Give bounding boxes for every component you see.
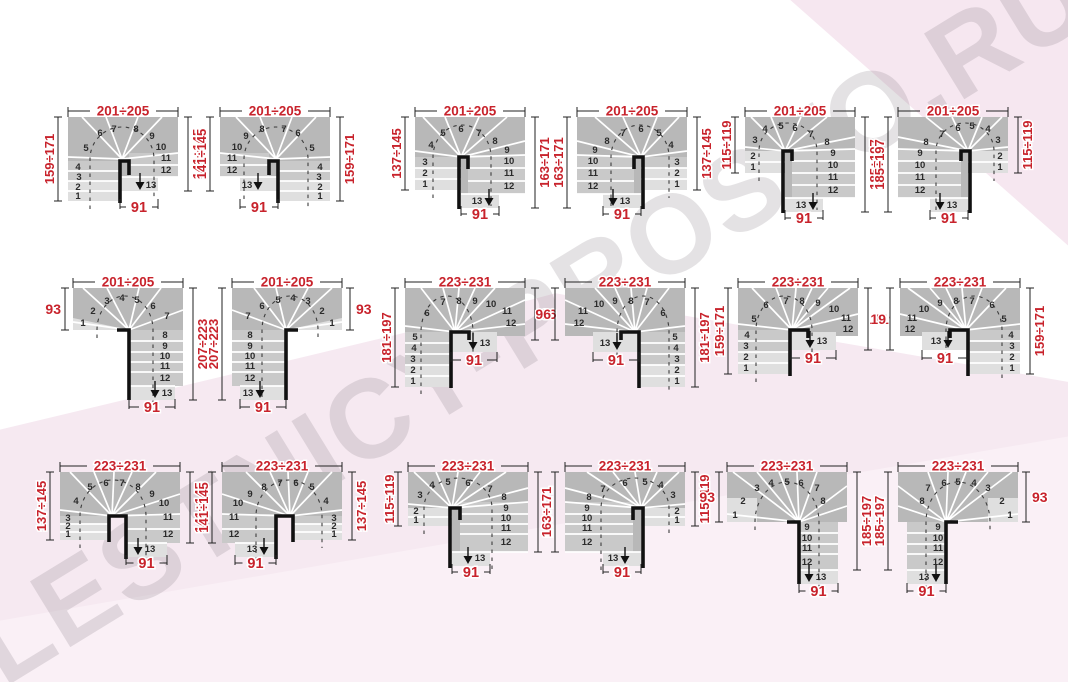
stair-plan-svg: 12345678910111213201÷205141÷145159÷17191	[180, 103, 362, 261]
stair-wall-bar	[117, 330, 129, 400]
dim-label: 201÷205	[444, 104, 497, 119]
dim-label: 159÷171	[1032, 306, 1047, 357]
dim-label: 115÷119	[382, 474, 397, 523]
step-number: 6	[798, 478, 803, 489]
step-number: 7	[644, 297, 649, 308]
step-number: 1	[743, 363, 749, 374]
stair-catalog-canvas: LESTNICY-PROSTO.RU 12345678910111213201÷…	[0, 0, 1068, 682]
step-number: 11	[907, 313, 918, 324]
dim-label: 223÷231	[256, 459, 309, 474]
step-number: 13	[817, 336, 828, 347]
step-number: 12	[915, 185, 926, 196]
step-number: 1	[674, 376, 680, 387]
step-number: 3	[410, 354, 415, 365]
stair-diagram-r3-6: 12345678910111213223÷231185÷1979391	[868, 458, 1050, 616]
stair-plan-svg: 12345678910111213223÷231137÷145141÷14591	[30, 458, 212, 616]
step-number: 5	[778, 121, 784, 132]
step-number: 3	[1009, 341, 1014, 352]
dim-label: 91	[144, 400, 160, 416]
dim-label: 91	[251, 200, 267, 216]
step-number: 13	[247, 544, 258, 555]
step-number: 13	[796, 200, 807, 211]
step-number: 6	[638, 124, 643, 135]
step-number: 4	[985, 124, 991, 135]
step-number: 12	[163, 529, 174, 540]
step-number: 13	[480, 338, 491, 349]
step-number: 3	[754, 483, 759, 494]
step-number: 11	[160, 361, 171, 372]
step-number: 6	[150, 301, 155, 312]
dim-label: 207÷223	[206, 319, 221, 370]
step-number: 11	[828, 172, 839, 183]
dim-label: 223÷231	[761, 459, 814, 474]
step-number: 9	[592, 145, 597, 156]
step-number: 12	[933, 557, 944, 568]
step-number: 6	[763, 300, 768, 311]
step-number: 9	[815, 298, 820, 309]
step-number: 2	[317, 182, 322, 193]
step-number: 12	[582, 537, 593, 548]
dim-label: 91	[918, 584, 934, 600]
step-number: 3	[417, 490, 422, 501]
step-number: 1	[997, 162, 1003, 173]
step-number: 4	[744, 330, 750, 341]
step-number: 10	[232, 142, 243, 153]
step-number: 7	[245, 311, 250, 322]
step-number: 2	[75, 182, 80, 193]
step-number: 4	[971, 478, 977, 489]
dim-label: 115÷119	[1020, 120, 1035, 169]
step-number: 12	[574, 318, 585, 329]
step-number: 3	[305, 296, 310, 307]
stair-diagram-r1-6: 12345678910111213201÷205185÷197115÷11991	[858, 103, 1040, 261]
step-number: 9	[149, 489, 154, 500]
step-region	[129, 330, 183, 386]
step-number: 8	[799, 296, 804, 307]
dim-label: 119	[870, 311, 886, 327]
step-number: 13	[475, 553, 486, 564]
stair-diagram-r2-2: 12345678910111213201÷205207÷2239391	[192, 274, 374, 432]
step-number: 3	[104, 296, 109, 307]
step-number: 10	[588, 156, 599, 167]
dim-label: 181÷197	[379, 312, 394, 363]
step-number: 9	[935, 522, 940, 533]
step-number: 3	[422, 157, 427, 168]
dim-label: 141÷145	[194, 129, 209, 180]
step-number: 13	[620, 196, 631, 207]
dim-label: 91	[247, 556, 263, 572]
step-number: 2	[1009, 352, 1014, 363]
step-number: 11	[163, 512, 174, 523]
stair-wall-bar	[276, 516, 293, 559]
dim-label: 91	[608, 353, 624, 369]
step-number: 4	[73, 496, 79, 507]
dim-label: 93	[1032, 489, 1048, 505]
step-number: 7	[440, 297, 445, 308]
step-number: 1	[1007, 510, 1013, 521]
step-number: 9	[243, 131, 248, 142]
step-number: 4	[429, 480, 435, 491]
step-number: 8	[919, 496, 924, 507]
step-number: 6	[259, 301, 264, 312]
step-number: 12	[843, 324, 854, 335]
step-number: 1	[80, 318, 86, 329]
step-number: 7	[476, 128, 481, 139]
dim-label: 93	[45, 301, 61, 317]
step-number: 13	[608, 553, 619, 564]
step-number: 11	[933, 543, 944, 554]
dim-label: 91	[131, 200, 147, 216]
step-number: 9	[830, 148, 835, 159]
dim-label: 201÷205	[774, 104, 827, 119]
step-number: 8	[456, 296, 461, 307]
stair-diagram-r1-2: 12345678910111213201÷205141÷145159÷17191	[180, 103, 362, 261]
step-number: 2	[743, 352, 748, 363]
dim-label: 141÷145	[196, 482, 211, 533]
step-number: 5	[672, 332, 678, 343]
step-number: 3	[995, 135, 1000, 146]
step-number: 12	[245, 373, 256, 384]
step-number: 1	[750, 162, 756, 173]
step-number: 6	[622, 478, 627, 489]
step-number: 12	[588, 181, 599, 192]
dim-label: 223÷231	[599, 275, 652, 290]
step-number: 2	[413, 506, 418, 517]
dim-label: 163÷171	[539, 487, 554, 538]
dim-label: 223÷231	[932, 459, 985, 474]
step-number: 7	[164, 311, 169, 322]
step-number: 13	[145, 544, 156, 555]
step-number: 1	[732, 510, 738, 521]
dim-label: 159÷171	[342, 134, 357, 185]
step-number: 5	[309, 143, 315, 154]
dim-label: 115÷119	[719, 120, 734, 169]
step-number: 9	[472, 296, 477, 307]
step-number: 6	[941, 478, 946, 489]
stair-plan-svg: 12345678910111213223÷23196181÷19791	[535, 274, 717, 432]
step-number: 7	[939, 129, 944, 140]
step-number: 6	[97, 128, 102, 139]
stair-plan-svg: 12345678910111213223÷231119159÷17191	[870, 274, 1052, 432]
step-number: 5	[412, 332, 418, 343]
step-number: 8	[953, 296, 958, 307]
step-number: 11	[229, 512, 240, 523]
step-number: 6	[660, 308, 665, 319]
stair-plan-svg: 12345678910111213201÷205207÷2239391	[192, 274, 374, 432]
step-number: 10	[919, 304, 930, 315]
step-number: 11	[502, 306, 513, 317]
step-number: 5	[751, 314, 757, 325]
dim-label: 96	[535, 306, 551, 322]
dim-label: 201÷205	[261, 275, 314, 290]
step-number: 10	[159, 498, 170, 509]
stair-diagram-r2-6: 12345678910111213223÷231119159÷17191	[870, 274, 1052, 432]
step-number: 12	[905, 324, 916, 335]
step-number: 4	[668, 140, 674, 151]
stair-diagram-r3-2: 12345678910111213223÷231141÷145137÷14591	[192, 458, 374, 616]
dim-label: 93	[699, 489, 715, 505]
step-number: 5	[784, 477, 790, 488]
step-number: 13	[931, 336, 942, 347]
step-number: 10	[504, 156, 515, 167]
step-number: 4	[673, 343, 679, 354]
step-number: 11	[161, 153, 172, 164]
step-number: 5	[642, 477, 648, 488]
step-number: 2	[999, 496, 1004, 507]
stair-diagram-r3-1: 12345678910111213223÷231137÷145141÷14591	[30, 458, 212, 616]
dim-label: 137÷145	[354, 481, 369, 532]
step-number: 7	[119, 478, 124, 489]
stair-diagram-r2-3: 12345678910111213223÷231181÷1979691	[375, 274, 557, 432]
dim-label: 223÷231	[439, 275, 492, 290]
stair-diagram-r2-4: 12345678910111213223÷23196181÷19791	[535, 274, 717, 432]
step-number: 5	[134, 295, 140, 306]
step-number: 11	[227, 153, 238, 164]
step-number: 10	[594, 299, 605, 310]
step-number: 5	[309, 482, 315, 493]
step-number: 5	[445, 477, 451, 488]
step-number: 3	[76, 172, 81, 183]
step-number: 5	[656, 128, 662, 139]
step-number: 9	[804, 522, 809, 533]
step-number: 4	[428, 140, 434, 151]
step-number: 8	[501, 492, 506, 503]
step-number: 11	[588, 168, 599, 179]
step-number: 12	[501, 537, 512, 548]
dim-label: 91	[472, 207, 488, 223]
step-number: 12	[227, 165, 238, 176]
dim-label: 201÷205	[606, 104, 659, 119]
stair-diagram-r3-4: 12345678910111213223÷231163÷171115÷11991	[535, 458, 717, 616]
step-number: 6	[458, 124, 463, 135]
dim-label: 137÷145	[34, 481, 49, 532]
stair-plan-svg: 12345678910111213223÷231115÷119163÷17191	[378, 458, 560, 616]
dim-label: 185÷197	[872, 139, 887, 190]
step-number: 8	[820, 496, 825, 507]
step-number: 3	[743, 341, 748, 352]
step-number: 3	[674, 157, 679, 168]
step-number: 2	[750, 151, 755, 162]
step-number: 9	[612, 296, 617, 307]
stair-plan-svg: 12345678910111213223÷231181÷1979691	[375, 274, 557, 432]
stair-diagram-r2-5: 12345678910111213223÷231159÷17111991	[708, 274, 890, 432]
step-number: 4	[119, 293, 125, 304]
step-number: 12	[828, 185, 839, 196]
stair-diagram-r3-3: 12345678910111213223÷231115÷119163÷17191	[378, 458, 560, 616]
step-number: 11	[802, 543, 813, 554]
step-number: 8	[604, 136, 609, 147]
step-number: 7	[814, 483, 819, 494]
step-number: 11	[915, 172, 926, 183]
step-number: 11	[504, 168, 515, 179]
stair-plan-svg: 12345678910111213223÷231163÷171115÷11991	[535, 458, 717, 616]
step-number: 7	[620, 128, 625, 139]
step-number: 6	[293, 478, 298, 489]
dim-label: 91	[614, 207, 630, 223]
step-number: 11	[501, 523, 512, 534]
step-number: 5	[83, 143, 89, 154]
dim-label: 91	[810, 584, 826, 600]
dim-label: 159÷171	[42, 134, 57, 185]
step-number: 13	[472, 196, 483, 207]
step-number: 6	[424, 308, 429, 319]
step-number: 13	[947, 200, 958, 211]
step-number: 4	[75, 162, 81, 173]
step-number: 5	[1001, 314, 1007, 325]
dim-label: 201÷205	[97, 104, 150, 119]
dim-label: 163÷171	[551, 137, 566, 188]
step-number: 5	[87, 482, 93, 493]
step-number: 10	[829, 304, 840, 315]
step-number: 3	[985, 483, 990, 494]
step-number: 4	[290, 293, 296, 304]
dim-label: 223÷231	[934, 275, 987, 290]
step-number: 12	[506, 318, 517, 329]
step-number: 2	[674, 506, 679, 517]
dim-label: 91	[466, 353, 482, 369]
step-number: 11	[245, 361, 256, 372]
step-number: 4	[411, 343, 417, 354]
step-number: 10	[828, 160, 839, 171]
dim-label: 185÷197	[872, 496, 887, 547]
step-number: 7	[277, 478, 282, 489]
step-number: 6	[103, 478, 108, 489]
step-number: 13	[600, 338, 611, 349]
step-number: 7	[281, 124, 286, 135]
step-region	[468, 155, 525, 194]
step-number: 6	[465, 478, 470, 489]
step-number: 3	[674, 354, 679, 365]
step-number: 12	[504, 181, 515, 192]
step-number: 7	[111, 124, 116, 135]
dim-label: 93	[356, 301, 372, 317]
step-number: 10	[233, 498, 244, 509]
stair-plan-svg: 12345678910111213223÷231159÷17111991	[708, 274, 890, 432]
dim-label: 223÷231	[442, 459, 495, 474]
step-number: 2	[90, 306, 95, 317]
stair-plan-svg: 12345678910111213223÷231185÷1979391	[868, 458, 1050, 616]
step-number: 7	[969, 296, 974, 307]
step-number: 11	[582, 523, 593, 534]
step-number: 7	[925, 483, 930, 494]
step-number: 13	[242, 180, 253, 191]
step-number: 4	[658, 480, 664, 491]
step-number: 13	[146, 180, 157, 191]
dim-label: 223÷231	[599, 459, 652, 474]
step-number: 1	[674, 179, 680, 190]
stair-wall-bar	[946, 522, 958, 584]
step-number: 3	[331, 513, 336, 524]
step-number: 3	[670, 490, 675, 501]
stair-plan-svg: 12345678910111213223÷231141÷145137÷14591	[192, 458, 374, 616]
stair-plan-svg: 12345678910111213201÷205163÷171137÷14591	[537, 103, 719, 261]
dim-label: 91	[796, 211, 812, 227]
dim-label: 137÷145	[389, 128, 404, 179]
dim-label: 223÷231	[94, 459, 147, 474]
stair-wall-bar	[787, 522, 799, 584]
stair-diagram-r3-5: 12345678910111213223÷23193185÷19791	[697, 458, 879, 616]
dim-label: 91	[614, 565, 630, 581]
dim-label: 159÷171	[712, 306, 727, 357]
step-number: 12	[160, 373, 171, 384]
step-number: 6	[792, 123, 797, 134]
dim-label: 91	[463, 565, 479, 581]
step-number: 10	[156, 142, 167, 153]
step-number: 9	[937, 298, 942, 309]
step-number: 4	[323, 496, 329, 507]
step-number: 12	[161, 165, 172, 176]
step-number: 7	[783, 296, 788, 307]
step-number: 9	[917, 148, 922, 159]
step-number: 5	[969, 121, 975, 132]
step-number: 3	[316, 172, 321, 183]
step-number: 9	[504, 145, 509, 156]
step-number: 9	[149, 131, 154, 142]
step-number: 1	[1009, 363, 1015, 374]
step-number: 2	[319, 306, 324, 317]
step-number: 13	[919, 572, 930, 583]
dim-label: 91	[805, 351, 821, 367]
step-number: 5	[440, 128, 446, 139]
step-number: 2	[997, 151, 1002, 162]
dim-label: 91	[937, 351, 953, 367]
step-number: 11	[578, 306, 589, 317]
step-number: 7	[808, 129, 813, 140]
step-number: 6	[295, 128, 300, 139]
dim-label: 201÷205	[927, 104, 980, 119]
dim-label: 91	[941, 211, 957, 227]
stair-wall-bar	[286, 330, 298, 400]
dim-label: 201÷205	[102, 275, 155, 290]
step-number: 9	[247, 489, 252, 500]
step-number: 2	[674, 168, 679, 179]
step-number: 8	[261, 482, 266, 493]
step-number: 8	[133, 124, 138, 135]
step-number: 8	[247, 330, 252, 341]
dim-label: 223÷231	[772, 275, 825, 290]
step-number: 5	[275, 295, 281, 306]
step-number: 4	[1008, 330, 1014, 341]
step-number: 12	[229, 529, 240, 540]
step-number: 3	[65, 513, 70, 524]
step-number: 7	[600, 484, 605, 495]
step-number: 8	[259, 124, 264, 135]
step-number: 7	[487, 484, 492, 495]
step-number: 1	[410, 376, 416, 387]
stair-diagram-r1-4: 12345678910111213201÷205163÷171137÷14591	[537, 103, 719, 261]
step-number: 8	[824, 137, 829, 148]
step-number: 12	[802, 557, 813, 568]
step-number: 10	[915, 160, 926, 171]
step-number: 2	[674, 365, 679, 376]
step-number: 4	[762, 124, 768, 135]
step-number: 8	[162, 330, 167, 341]
step-region	[460, 502, 528, 552]
stair-wall-bar	[109, 516, 126, 559]
step-number: 2	[740, 496, 745, 507]
step-region	[232, 330, 286, 386]
step-number: 1	[329, 318, 335, 329]
step-number: 5	[955, 477, 961, 488]
stair-plan-svg: 12345678910111213201÷205185÷197115÷11991	[858, 103, 1040, 261]
step-number: 8	[923, 137, 928, 148]
dim-label: 91	[255, 400, 271, 416]
step-number: 3	[752, 135, 757, 146]
step-number: 13	[816, 572, 827, 583]
step-number: 6	[989, 300, 994, 311]
step-number: 8	[628, 296, 633, 307]
step-number: 10	[486, 299, 497, 310]
